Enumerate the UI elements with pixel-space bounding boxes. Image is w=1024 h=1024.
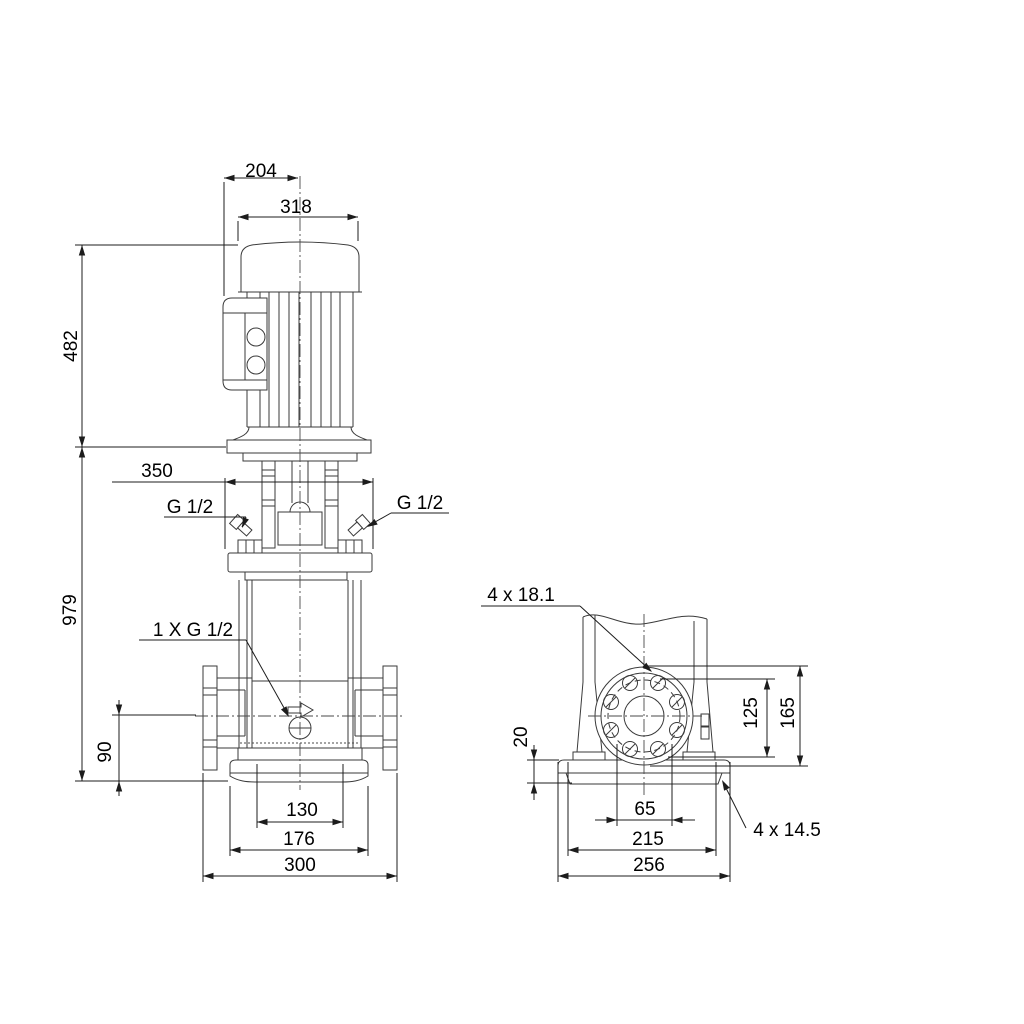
dimension-arrowhead xyxy=(531,750,537,761)
dimension-label: 204 xyxy=(245,161,277,182)
dimension-label: 4 x 14.5 xyxy=(753,820,821,841)
dimension-arrowhead xyxy=(348,214,359,220)
dimension-label: G 1/2 xyxy=(167,497,213,518)
staybolt-nut xyxy=(238,540,262,553)
dimension-arrowhead xyxy=(568,847,579,853)
dimension-arrowhead xyxy=(288,175,299,181)
dimension-label: 350 xyxy=(141,461,173,482)
dimension-line xyxy=(580,606,651,671)
dimension-arrowhead xyxy=(706,847,717,853)
dimension-arrowhead xyxy=(116,781,122,792)
gauge-plug-right xyxy=(347,514,371,537)
dimension-label: 90 xyxy=(95,741,116,762)
dimension-label: 20 xyxy=(511,726,532,747)
pump-base-front xyxy=(230,748,368,782)
nameplate-clip xyxy=(701,727,709,739)
dimension-label: 165 xyxy=(778,697,799,729)
nameplate-clip xyxy=(701,714,709,726)
pump-dimensional-drawing: 204318482350G 1/2G 1/29791 X G 1/2901301… xyxy=(0,0,1024,1024)
dimension-arrowhead xyxy=(764,747,770,758)
dimension-label: 65 xyxy=(634,799,655,820)
dimension-arrowhead xyxy=(672,817,683,823)
terminal-box xyxy=(223,298,267,390)
dimension-arrowhead xyxy=(720,873,731,879)
dimension-arrowhead xyxy=(116,705,122,716)
dimension-arrowhead xyxy=(79,771,85,782)
dimension-arrowhead xyxy=(719,778,730,790)
dimension-label: 1 X G 1/2 xyxy=(153,620,233,641)
dimension-arrowhead xyxy=(387,873,398,879)
dimension-label: 176 xyxy=(283,829,315,850)
dimension-arrowhead xyxy=(607,817,618,823)
drain-plug xyxy=(288,703,313,739)
dimension-arrowhead xyxy=(531,783,537,794)
dimension-label: G 1/2 xyxy=(397,493,443,514)
flow-arrow-icon xyxy=(288,703,313,717)
dimension-label: 482 xyxy=(61,330,82,362)
break-line xyxy=(583,615,707,624)
dimension-arrowhead xyxy=(225,479,236,485)
gauge-plug-left xyxy=(230,514,254,537)
dimension-label: 4 x 18.1 xyxy=(487,585,555,606)
dimension-arrowhead xyxy=(363,479,374,485)
dimension-layer: 204318482350G 1/2G 1/29791 X G 1/2901301… xyxy=(60,161,821,882)
dimension-arrowhead xyxy=(558,873,569,879)
dimension-label: 979 xyxy=(60,594,81,626)
dimension-label: 256 xyxy=(633,855,665,876)
dimension-label: 215 xyxy=(632,829,664,850)
drawing-svg: 204318482350G 1/2G 1/29791 X G 1/2901301… xyxy=(0,0,1024,1024)
dimension-label: 125 xyxy=(741,697,762,729)
dimension-arrowhead xyxy=(358,847,369,853)
dimension-arrowhead xyxy=(238,214,249,220)
dimension-arrowhead xyxy=(224,175,235,181)
dimension-arrowhead xyxy=(79,447,85,458)
motor xyxy=(223,242,367,440)
dimension-arrowhead xyxy=(79,245,85,256)
dimension-arrowhead xyxy=(797,756,803,767)
dimension-label: 130 xyxy=(286,800,318,821)
dimension-arrowhead xyxy=(230,847,241,853)
dimension-label: 318 xyxy=(280,197,312,218)
dimension-arrowhead xyxy=(203,873,214,879)
dimension-arrowhead xyxy=(79,437,85,448)
dimension-arrowhead xyxy=(797,666,803,677)
motor-stool xyxy=(227,440,371,553)
dimension-arrowhead xyxy=(764,679,770,690)
dimension-arrowhead xyxy=(257,819,268,825)
staybolt-nut xyxy=(338,540,362,553)
dimension-label: 300 xyxy=(284,855,316,876)
dimension-arrowhead xyxy=(333,819,344,825)
